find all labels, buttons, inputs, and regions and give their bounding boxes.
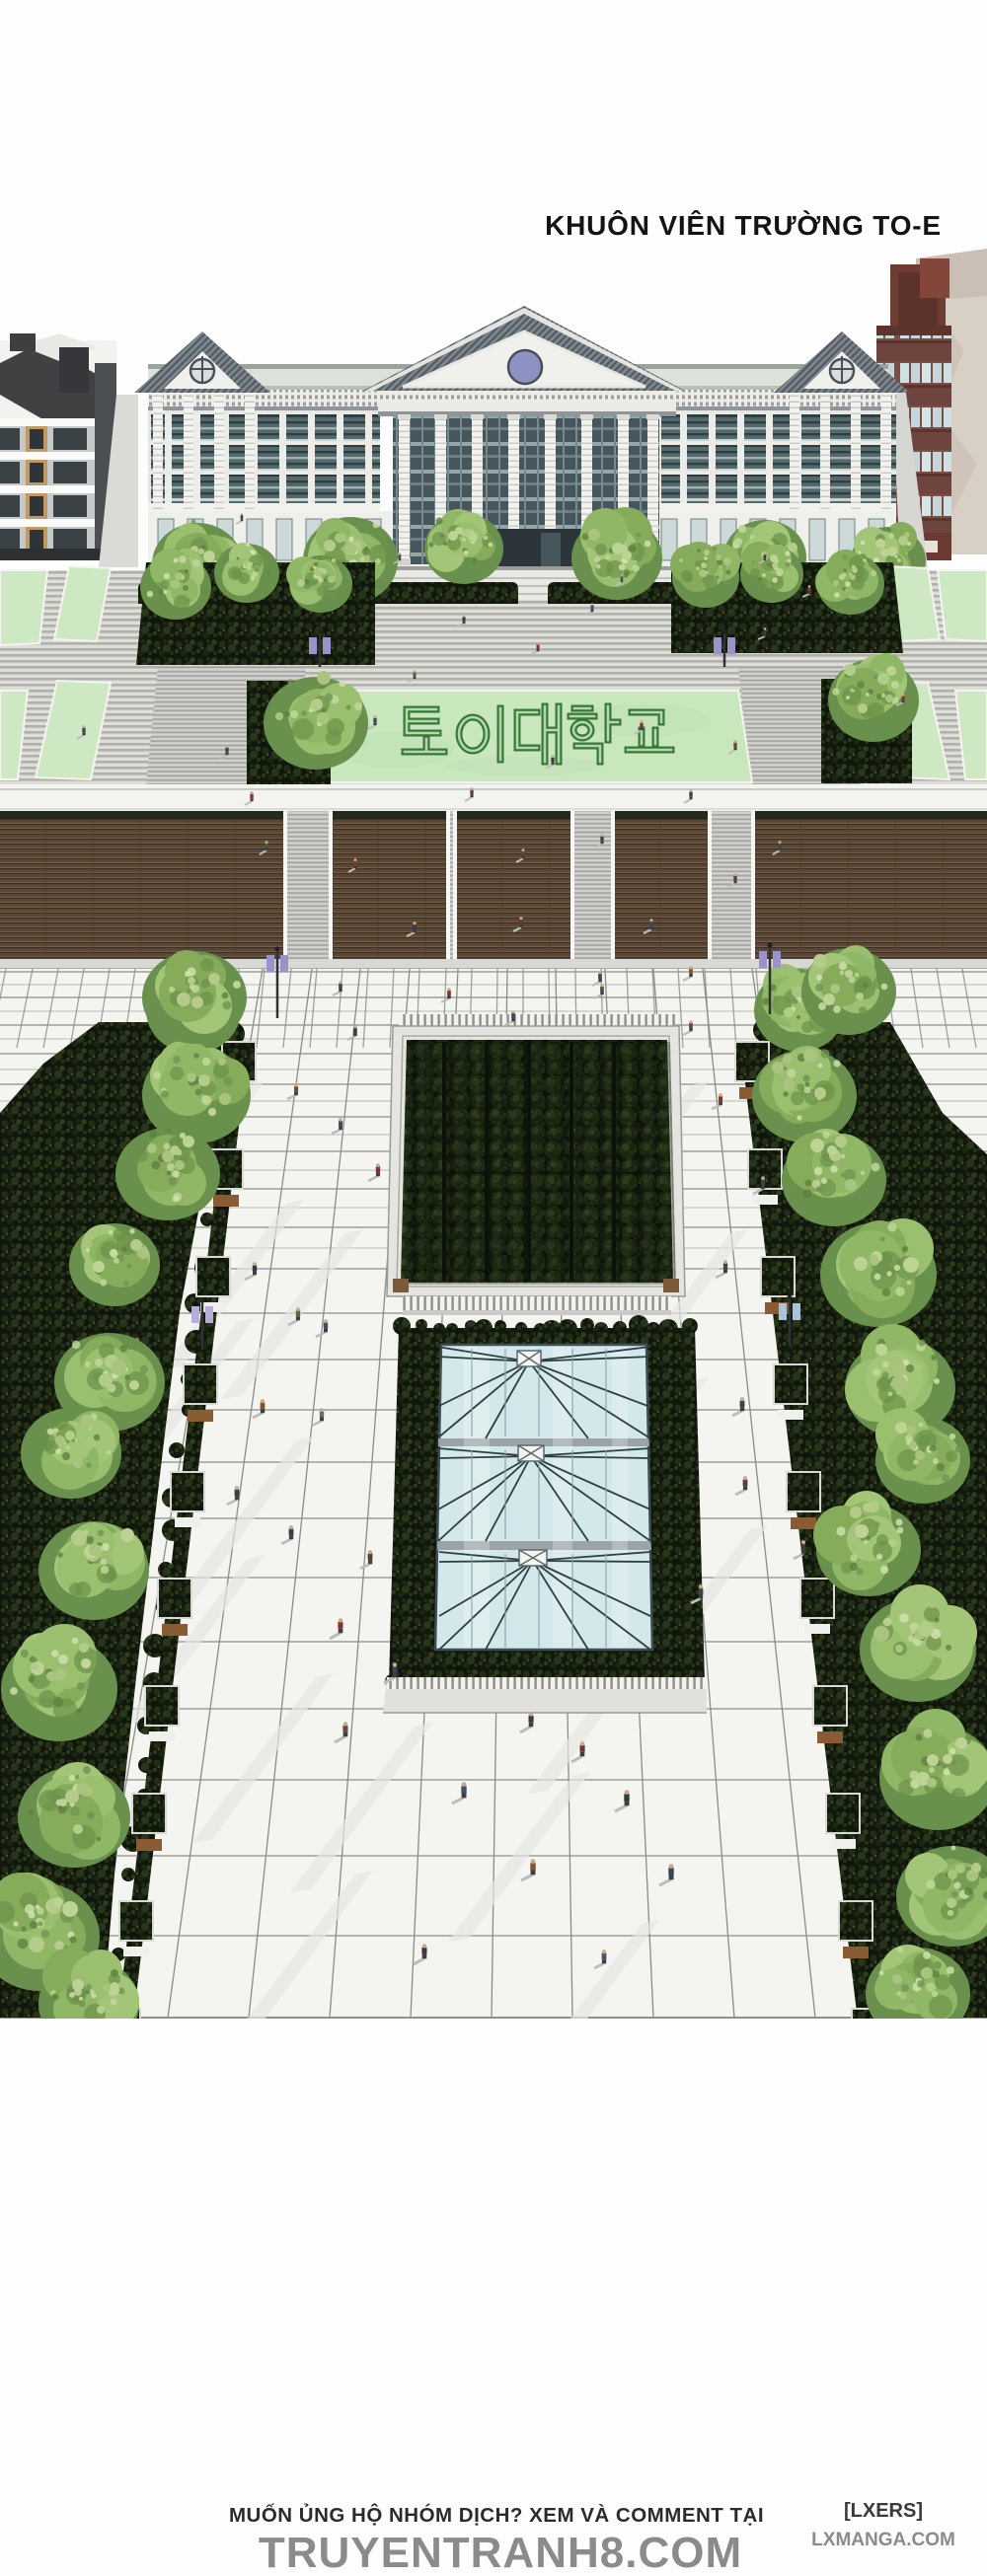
svg-text:MUỐN ỦNG HỘ NHÓM DỊCH? XEM VÀ: MUỐN ỦNG HỘ NHÓM DỊCH? XEM VÀ COMMENT TẠ… (229, 2503, 764, 2527)
svg-text:[LXERS]: [LXERS] (844, 2500, 923, 2522)
svg-text:TRUYENTRANH8.COM: TRUYENTRANH8.COM (259, 2529, 742, 2576)
svg-text:KHUÔN VIÊN TRƯỜNG TO-E: KHUÔN VIÊN TRƯỜNG TO-E (545, 209, 942, 241)
svg-text:LXMANGA.COM: LXMANGA.COM (811, 2530, 955, 2550)
